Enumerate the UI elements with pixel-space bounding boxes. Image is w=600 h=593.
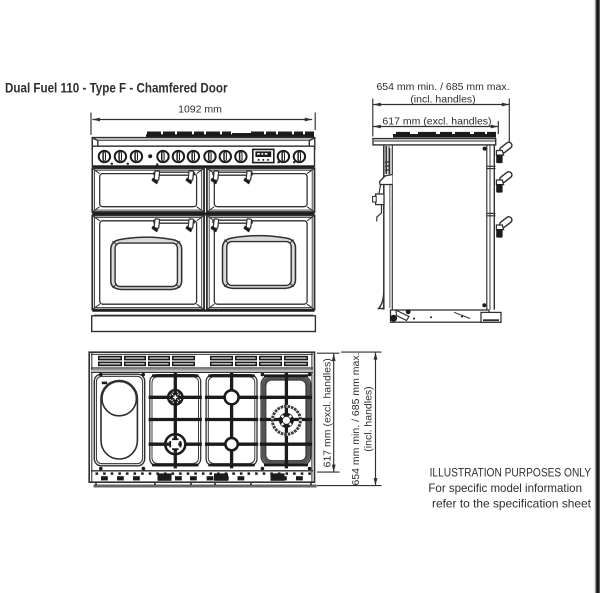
- svg-text:1092 mm: 1092 mm: [178, 104, 222, 116]
- svg-text:617 mm (excl. handles): 617 mm (excl. handles): [382, 116, 491, 128]
- svg-text:Dual Fuel 110 - Type F - Chamf: Dual Fuel 110 - Type F - Chamfered Door: [5, 80, 228, 96]
- svg-text:(incl. handles): (incl. handles): [410, 94, 475, 106]
- svg-text:For specific model information: For specific model information: [428, 481, 582, 495]
- svg-text:ILLUSTRATION PURPOSES ONLY: ILLUSTRATION PURPOSES ONLY: [430, 466, 591, 480]
- svg-text:refer to the specification she: refer to the specification sheet: [432, 497, 592, 511]
- svg-text:(incl. handles): (incl. handles): [362, 386, 374, 451]
- svg-text:654 mm min. / 685 mm max.: 654 mm min. / 685 mm max.: [350, 352, 362, 485]
- svg-text:617 mm (excl. handles): 617 mm (excl. handles): [321, 358, 333, 467]
- svg-text:654 mm min. / 685 mm max.: 654 mm min. / 685 mm max.: [376, 81, 509, 93]
